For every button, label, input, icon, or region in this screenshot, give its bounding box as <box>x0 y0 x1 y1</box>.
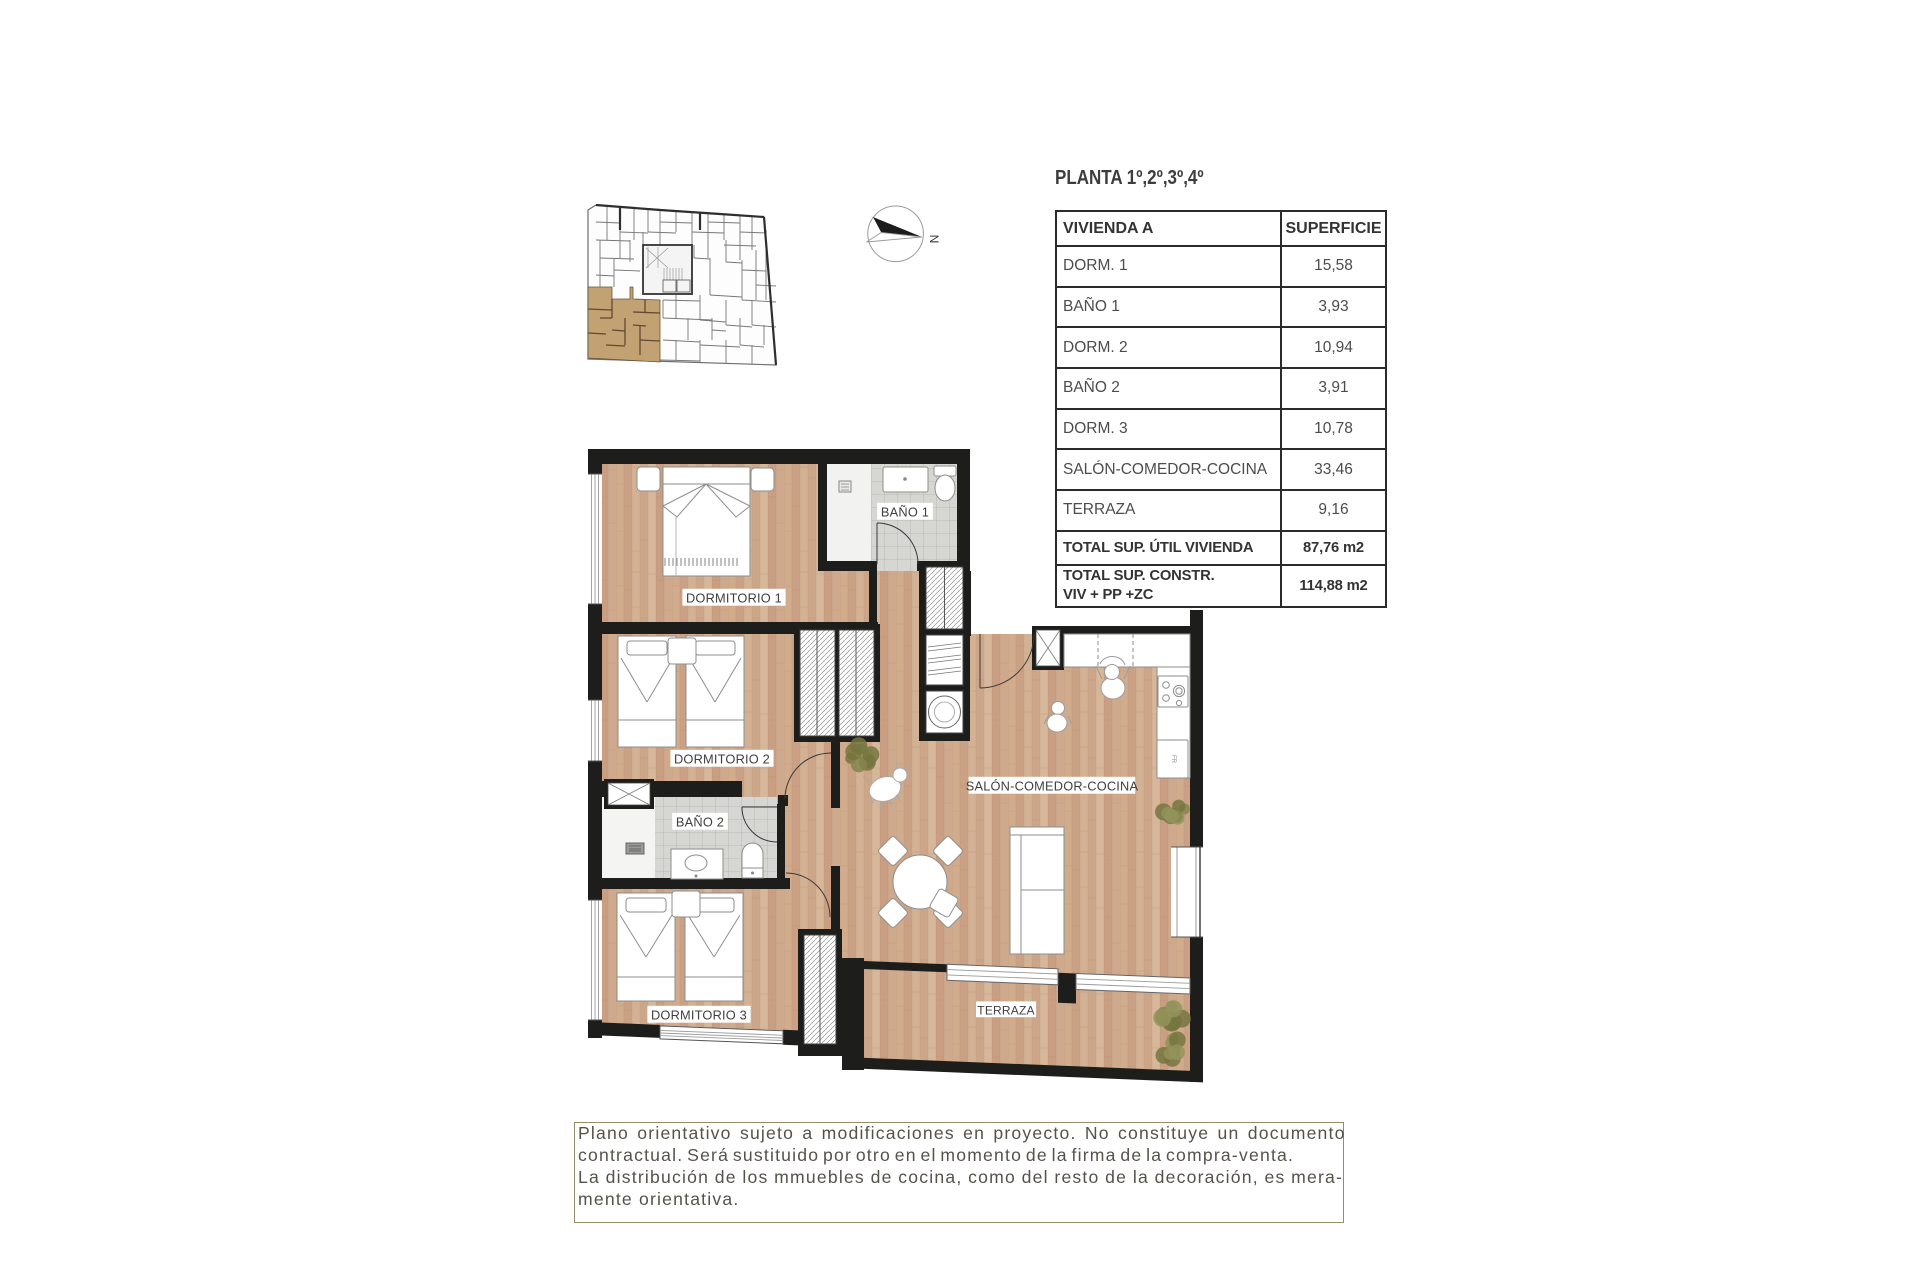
svg-text:BAÑO 2: BAÑO 2 <box>676 815 724 830</box>
svg-text:BAÑO 1: BAÑO 1 <box>881 505 929 520</box>
svg-text:FR: FR <box>1170 755 1176 764</box>
svg-text:DORMITORIO 2: DORMITORIO 2 <box>674 752 770 767</box>
svg-text:N: N <box>927 235 941 244</box>
svg-text:DORMITORIO 1: DORMITORIO 1 <box>686 591 782 606</box>
svg-text:DORMITORIO 3: DORMITORIO 3 <box>651 1008 747 1023</box>
svg-text:TERRAZA: TERRAZA <box>977 1003 1034 1017</box>
svg-text:SALÓN-COMEDOR-COCINA: SALÓN-COMEDOR-COCINA <box>966 779 1139 794</box>
